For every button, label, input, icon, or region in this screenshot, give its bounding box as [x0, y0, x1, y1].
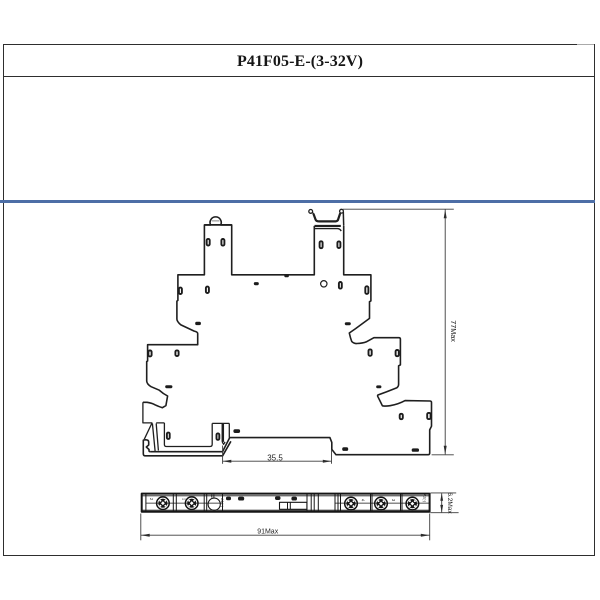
svg-text:4: 4 — [361, 499, 366, 502]
svg-text:6.2Max: 6.2Max — [446, 492, 453, 514]
svg-text:77Max: 77Max — [449, 320, 458, 342]
svg-text:35.5: 35.5 — [267, 453, 283, 462]
svg-text:2: 2 — [149, 498, 154, 501]
svg-text:A2(-): A2(-) — [423, 494, 427, 502]
svg-text:91Max: 91Max — [257, 528, 279, 535]
svg-text:A1(+): A1(+) — [220, 498, 224, 507]
svg-text:3: 3 — [391, 499, 396, 502]
